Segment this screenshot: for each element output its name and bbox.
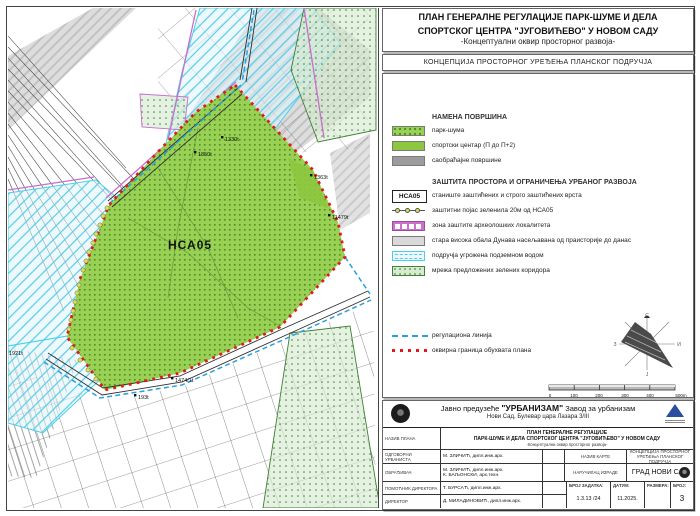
corridor-swatch <box>392 266 425 276</box>
title-box: ПЛАН ГЕНЕРАЛНЕ РЕГУЛАЦИЈЕ ПАРК-ШУМЕ И ДЕ… <box>382 8 694 52</box>
plan-boundary-symbol <box>392 349 428 352</box>
plan-title-line3: -Концептуални оквир просторног развоја- <box>383 37 693 47</box>
compass-e-label: И <box>677 342 681 348</box>
map-canvas: НСА05 1330t 1850t 1363t 11479t 1921t 147… <box>8 8 378 508</box>
urbanist-label: ОДГОВОРНИ УРБАНИСТА <box>383 450 441 463</box>
protection-heading: ЗАШТИТА ПРОСТОРА И ОГРАНИЧЕЊА УРБАНОГ РА… <box>432 179 637 186</box>
parcel-label: 11479t <box>332 215 349 221</box>
legend-item-green-belt: заштитни појас зеленила 20м од НСА05 <box>383 206 683 218</box>
author-name2: К. БАЉОНСКИ, арх.техн. <box>443 473 540 478</box>
urbanist-row: ОДГОВОРНИ УРБАНИСТА М. ЗЛИЧИЋ, дипл.инж.… <box>383 450 693 464</box>
parcel-label: 1921t <box>9 351 23 357</box>
urbanist-value: М. ЗЛИЧИЋ, дипл.инж.арх. <box>441 450 543 463</box>
scale-bar: 0 100 200 300 400 500m <box>547 383 693 400</box>
deputy-director-value: Т. БУРСАЋ, дипл.инж.арх. <box>441 482 543 494</box>
company-address: Нови Сад, Булевар цара Лазара 3/III <box>417 414 659 420</box>
legend-label: спортски центар (П до П+2) <box>432 142 515 149</box>
sheet-number-label: БРОЈ: <box>671 482 693 489</box>
legend-item-groundwater: подручја угрожена подземном водом <box>383 251 683 263</box>
regulation-line-symbol <box>392 335 428 337</box>
park-forest-swatch <box>392 126 425 136</box>
scale-tick: 200 <box>595 393 603 398</box>
scale-label: РАЗМЕРА: <box>645 482 670 489</box>
company-name: "УРБАНИЗАМ" <box>501 403 563 413</box>
sports-center-swatch <box>392 141 425 151</box>
plan-name-label: НАЗИВ ПЛАНА <box>383 428 441 449</box>
legend-item-corridors: мрежа предложених зелених коридора <box>383 266 683 278</box>
map-title: КОНЦЕПЦИЈА ПРОСТОРНОГ УРЕЂЕЊА ПЛАНСКОГ П… <box>383 55 693 70</box>
date-cell: ДАТУМ: 11.2025. <box>611 482 645 508</box>
plan-title-line2: СПОРТСКОГ ЦЕНТРА "ЈУГОВИЋЕВО" У НОВОМ СА… <box>383 26 693 37</box>
task-number-value: 1.3.13 /24 <box>567 489 610 508</box>
parcel-label: 1850t <box>198 152 212 158</box>
task-number-label: БРОЈ ЗАДАТКА: <box>567 482 610 489</box>
titleblock: Јавно предузеће "УРБАНИЗАМ" Завод за урб… <box>382 400 694 510</box>
plan-title-line1: ПЛАН ГЕНЕРАЛНЕ РЕГУЛАЦИЈЕ ПАРК-ШУМЕ И ДЕ… <box>383 12 693 23</box>
parcel-label: 1474/1t <box>175 378 194 384</box>
sheet-number-value: 3 <box>671 489 693 508</box>
plan-name-line3: -Концептуални оквир просторног развоја- <box>443 442 691 447</box>
sheet-number-cell: БРОЈ: 3 <box>671 482 693 508</box>
author-value: М. ЗЛИЧИЋ, дипл.инж.арх. К. БАЉОНСКИ, ар… <box>441 464 543 481</box>
plan-name-row: НАЗИВ ПЛАНА ПЛАН ГЕНЕРАЛНЕ РЕГУЛАЦИЈЕ ПА… <box>383 428 693 450</box>
task-block: БРОЈ ЗАДАТКА: 1.3.13 /24 ДАТУМ: 11.2025.… <box>567 482 693 508</box>
scale-cell: РАЗМЕРА: <box>645 482 671 508</box>
parcel-label: 193t <box>138 395 149 401</box>
scale-tick: 300 <box>621 393 629 398</box>
groundwater-swatch <box>392 251 425 261</box>
plan-sheet: { "colors": { "park_green": "#98d153", "… <box>0 0 700 516</box>
legend-item-old-bank: стара висока обала Дунава насељавана од … <box>383 236 683 248</box>
date-value: 11.2025. <box>611 489 644 508</box>
legend-item-park-forest: парк-шума <box>383 126 683 138</box>
legend-item-sports-center: спортски центар (П до П+2) <box>383 141 683 153</box>
legend-label: парк-шума <box>432 127 464 134</box>
map-name-value: КОНЦЕПЦИЈА ПРОСТОРНОГ УРЕЂЕЊА ПЛАНСКОГ П… <box>627 450 693 463</box>
legend-item-traffic: саобраћајне површине <box>383 156 683 168</box>
legend-item-habitat: НСА05 станиште заштићених и строго зашти… <box>383 191 683 203</box>
chamber-logo-text <box>665 419 685 423</box>
habitat-area-label: НСА05 <box>168 238 212 252</box>
deputy-director-label: ПОМОЋНИК ДИРЕКТОРА <box>383 482 441 494</box>
client-value-cell: ГРАД НОВИ САД <box>627 464 693 481</box>
plan-name-value: ПЛАН ГЕНЕРАЛНЕ РЕГУЛАЦИЈЕ ПАРК-ШУМЕ И ДЕ… <box>441 428 693 449</box>
chamber-logo-icon <box>666 404 684 417</box>
parcel-label: 1363t <box>314 175 328 181</box>
parcel-label: 1330t <box>225 137 239 143</box>
scale-tick: 500m <box>675 393 687 398</box>
legend-item-archaeology: зона заштите археолошких локалитета <box>383 221 683 233</box>
scale-value <box>645 489 670 508</box>
traffic-swatch <box>392 156 425 166</box>
green-belt-symbol <box>392 210 425 211</box>
plan-map: НСА05 1330t 1850t 1363t 11479t 1921t 147… <box>8 8 379 508</box>
compass-w-label: З <box>613 342 616 348</box>
scale-tick: 100 <box>570 393 578 398</box>
compass-s-label: Ј <box>646 372 649 378</box>
city-emblem-icon <box>679 467 690 478</box>
signature-cell <box>543 450 565 463</box>
client-label: НАРУЧИЛАЦ ИЗРАДЕ <box>565 464 627 481</box>
legend-label: заштитни појас зеленила 20м од НСА05 <box>432 207 553 214</box>
map-title-box: КОНЦЕПЦИЈА ПРОСТОРНОГ УРЕЂЕЊА ПЛАНСКОГ П… <box>382 54 694 71</box>
bottom-rows: ПОМОЋНИК ДИРЕКТОРА Т. БУРСАЋ, дипл.инж.а… <box>383 482 693 508</box>
director-label: ДИРЕКТОР <box>383 495 441 508</box>
old-bank-swatch <box>392 236 425 246</box>
legend-box: НАМЕНА ПОВРШИНА парк-шума спортски цента… <box>382 73 694 398</box>
date-label: ДАТУМ: <box>611 482 644 489</box>
legend-label: оквирна граница обухвата плана <box>432 347 531 354</box>
director-value: Д. МИЛАДИНОВИЋ, дипл.инж.арх. <box>441 495 543 508</box>
land-use-heading: НАМЕНА ПОВРШИНА <box>432 114 507 121</box>
signature-cell <box>543 464 565 481</box>
company-line: Јавно предузеће "УРБАНИЗАМ" Завод за урб… <box>417 404 659 413</box>
signature-cell <box>543 482 566 494</box>
director-rows: ПОМОЋНИК ДИРЕКТОРА Т. БУРСАЋ, дипл.инж.а… <box>383 482 567 508</box>
author-row: ОБРАЂИВАЧ М. ЗЛИЧИЋ, дипл.инж.арх. К. БА… <box>383 464 693 482</box>
titleblock-header: Јавно предузеће "УРБАНИЗАМ" Завод за урб… <box>383 401 693 428</box>
legend-label: станиште заштићених и строго заштићених … <box>432 192 582 199</box>
legend-label: подручја угрожена подземном водом <box>432 252 544 259</box>
company-post: Завод за урбанизам <box>565 404 635 413</box>
nsa-badge: НСА05 <box>392 190 427 203</box>
task-number-cell: БРОЈ ЗАДАТКА: 1.3.13 /24 <box>567 482 611 508</box>
legend-label: зона заштите археолошких локалитета <box>432 222 550 229</box>
compass-rose-icon: С И Ј З <box>611 312 683 378</box>
map-name-label: НАЗИВ КАРТЕ <box>565 450 627 463</box>
legend-label: стара висока обала Дунава насељавана од … <box>432 237 631 244</box>
author-label: ОБРАЂИВАЧ <box>383 464 441 481</box>
legend-label: мрежа предложених зелених коридора <box>432 267 550 274</box>
legend-label: регулациона линија <box>432 332 492 339</box>
legend-label: саобраћајне површине <box>432 157 501 164</box>
signature-cell <box>543 495 566 508</box>
urbanizam-logo-icon <box>391 404 410 423</box>
company-pre: Јавно предузеће <box>441 404 500 413</box>
scale-tick: 400 <box>646 393 654 398</box>
scale-tick: 0 <box>549 393 552 398</box>
archaeology-swatch <box>392 221 425 231</box>
